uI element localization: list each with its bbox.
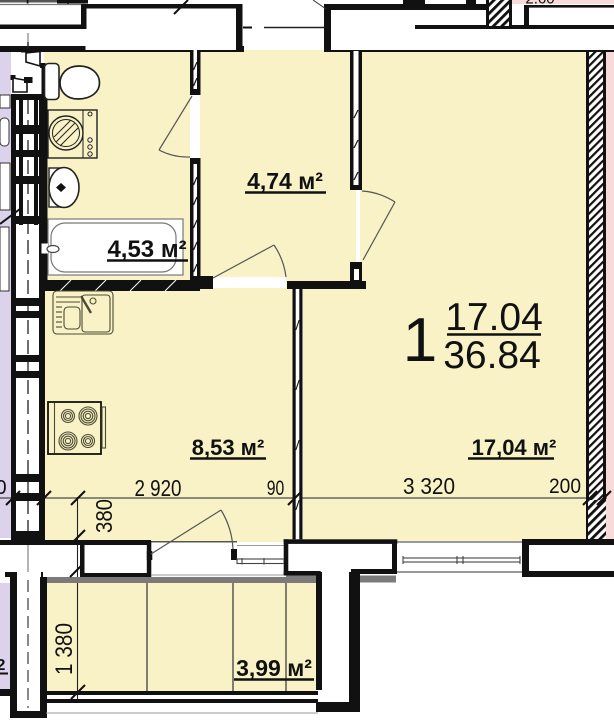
svg-text:4,53 м²: 4,53 м²	[107, 236, 186, 263]
svg-text:0: 0	[0, 477, 7, 499]
svg-text:2.60: 2.60	[525, 0, 554, 8]
svg-text:1 380: 1 380	[51, 623, 78, 675]
svg-text:3,99 м²: 3,99 м²	[236, 655, 312, 681]
svg-text:17.04: 17.04	[445, 296, 543, 339]
svg-text:3 320: 3 320	[403, 473, 455, 499]
svg-text:8,53 м²: 8,53 м²	[192, 435, 265, 460]
svg-text:2: 2	[0, 657, 6, 674]
svg-text:1: 1	[403, 306, 437, 375]
svg-text:17,04 м²: 17,04 м²	[472, 435, 557, 460]
svg-text:2 920: 2 920	[135, 475, 182, 501]
svg-text:90: 90	[267, 477, 285, 500]
svg-text:200: 200	[549, 475, 581, 498]
svg-text:380: 380	[91, 499, 117, 533]
svg-text:4,74 м²: 4,74 м²	[247, 168, 323, 194]
svg-text:36.84: 36.84	[443, 334, 541, 377]
